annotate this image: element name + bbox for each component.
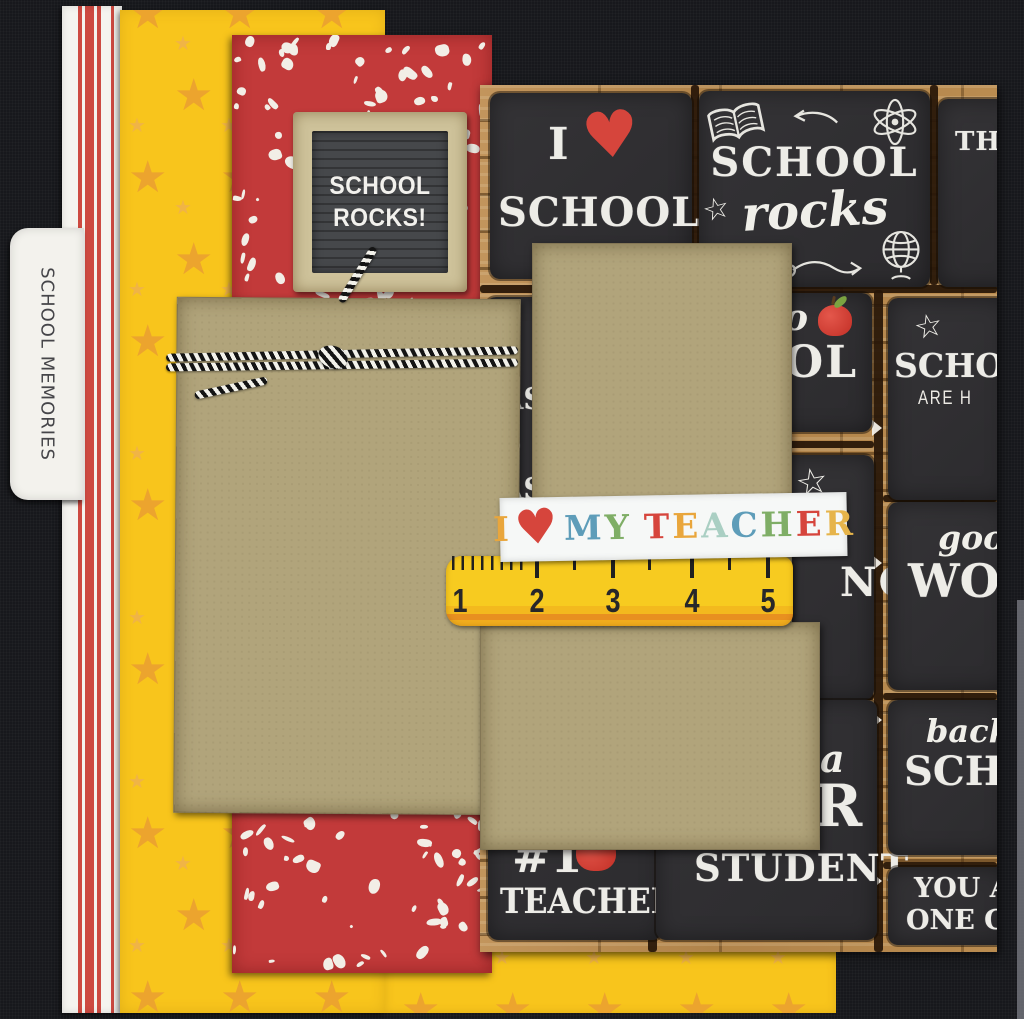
speckle [304,859,321,875]
ruler-number: 1 [450,582,470,620]
speckle [241,189,247,200]
letterboard: SCHOOL ROCKS! [293,112,467,292]
ruler-numbers: 12345 [446,556,793,626]
speckle [461,53,472,66]
speckle [257,899,265,909]
star-glyph: ★ [174,894,213,938]
star-glyph: ★ [120,238,121,282]
speckle [432,852,446,870]
speckle [465,143,480,154]
school-days-line1: SCHOO [894,346,997,385]
speckle [353,76,359,85]
star-glyph: ★ [128,484,167,528]
heart-icon: ♥ [512,497,562,557]
speckle [447,82,453,91]
speckle [413,95,426,106]
star-glyph: ★ [120,730,121,774]
banner-letter: R [824,504,854,545]
speckle [433,44,450,59]
star-glyph: ★ [493,988,532,1013]
one-cool-line1: YOU A [914,873,997,904]
back-script: back [926,712,997,750]
speckle [380,949,388,958]
teacher-banner-letters: I♥MYTEACHER [492,496,856,558]
speckle [255,197,259,201]
star-glyph: ★ [585,952,603,967]
speckle [280,56,296,72]
speckle [436,901,450,917]
star-glyph: ★ [312,976,351,1013]
speckle [395,69,408,83]
banner-letter: Y [604,508,630,548]
star-glyph: ★ [128,812,167,856]
banner-letter: E [672,507,700,547]
speckle [234,56,242,63]
star-glyph: ★ [174,238,213,282]
star-glyph: ★ [120,894,121,938]
wood-gap-line [883,693,997,700]
star-glyph: ★ [174,853,192,873]
star-glyph: ★ [120,566,121,610]
speckle [248,215,259,225]
heart-icon: ♥ [578,96,643,176]
speckle [235,86,246,97]
star-glyph: ★ [677,988,716,1013]
speckle [281,834,295,844]
ruler-embellishment: 12345 [446,556,793,626]
speckle [265,880,280,893]
star-glyph: ★ [220,976,259,1013]
school-rocks-word1: SCHOOL [710,139,918,186]
star-glyph: ★ [677,952,695,967]
speckle [267,147,283,162]
ruler-number: 5 [758,582,778,620]
star-glyph: ★ [128,935,146,955]
speckle [241,232,251,246]
one-cool-line2: ONE CO [906,905,997,936]
banner-letter: M [564,508,603,549]
speckle [414,944,430,961]
card-good-work-partial: good WOR [888,502,997,690]
speckle [458,858,468,867]
speckle [239,828,255,841]
speckle [244,35,257,48]
speckle [466,876,480,888]
arrow-icon [791,107,839,127]
speckle [354,55,367,67]
letterboard-board: SCHOOL ROCKS! [312,131,448,273]
speckle [478,41,487,51]
card-back-to-school-partial: back SCHO [888,700,997,855]
speckle [281,42,293,54]
speckle [242,847,248,856]
speckle [244,273,250,282]
speckle [456,921,468,934]
star-glyph: ★ [120,402,121,446]
tab-label: SCHOOL MEMORIES [37,267,58,461]
school-rocks-word2: rocks [740,179,890,243]
banner-letter: C [730,506,759,546]
star-glyph: ★ [128,443,146,463]
card-this-partial: TH [938,99,997,287]
speckle [256,57,267,72]
good-work-script: good [938,518,997,557]
speckle [247,257,259,273]
i-love-school-word: SCHOOL [498,189,700,236]
teacher-word: TEACHER [500,881,677,922]
star-glyph: ★ [312,10,351,36]
speckle [401,44,411,55]
speckle [455,874,465,888]
speckle [374,88,390,104]
speckle [411,904,418,912]
star-glyph: ★ [769,952,787,967]
star-glyph: ★ [174,197,192,217]
speckle [431,96,438,102]
speckle [367,878,380,895]
speckle [255,824,266,837]
speckle [275,132,283,140]
speckle [349,924,354,928]
star-glyph: ★ [128,156,167,200]
speckle [422,851,429,859]
speckle [233,102,239,109]
banner-letter: E [795,504,823,544]
apple-icon [818,305,852,336]
i-love-school-prefix: I [548,119,569,170]
star-glyph: ★ [128,115,146,135]
star-glyph: ★ [128,648,167,692]
ruler-number: 2 [527,582,547,620]
star-glyph: ★ [128,10,167,36]
card-one-cool-partial: YOU A ONE CO [888,867,997,945]
star-glyph: ★ [174,33,192,53]
star-glyph: ★ [220,10,259,36]
letterboard-line2: ROCKS! [333,202,426,235]
ruler-number: 3 [603,582,623,620]
star-glyph: ★ [128,771,146,791]
this-partial-text: TH [955,127,997,157]
speckle [275,271,287,285]
ruler-number: 4 [682,582,702,620]
speckle [385,46,394,54]
scrapbook-page-photo: SCHOOL MEMORIES ★★★★★★★★★★★★★★★★★★★★★★★★… [0,0,1024,1019]
banner-letter: A [701,506,729,546]
star-glyph: ★ [128,976,167,1013]
wood-gap-line [930,85,938,285]
kraft-photo-mat-bottom [480,622,820,850]
banner-letter: I [493,510,511,550]
surface-edge [1017,600,1024,1019]
speckle [420,824,428,829]
good-work-caps: WOR [908,554,997,608]
school-days-line2: ARE H [918,388,972,410]
student-cap-r: R [814,772,862,840]
card-school-days-partial: ☆ SCHOO ARE H [888,298,997,500]
speckle [284,855,290,861]
speckle [420,65,435,80]
banner-letter: T [644,507,671,547]
speckle [261,835,275,851]
letterboard-line1: SCHOOL [329,170,430,203]
speckle [269,959,275,963]
student-word: STUDENT [694,846,909,890]
star-glyph: ★ [585,988,624,1013]
speckle [360,953,371,960]
back-caps: SCHO [904,748,997,795]
star-glyph: ★ [120,74,121,118]
speckle [332,952,349,971]
star-doodle-icon: ☆ [700,192,734,228]
star-glyph: ★ [128,279,146,299]
star-glyph: ★ [174,74,213,118]
speckle [240,253,246,264]
speckle [233,945,236,955]
speckle [356,960,365,968]
corner-triangle-icon [872,420,882,436]
teacher-banner: I♥MYTEACHER [499,492,847,562]
school-memories-tab: SCHOOL MEMORIES [10,228,84,500]
star-glyph: ★ [493,952,511,967]
star-glyph: ★ [128,607,146,627]
banner-letter: H [760,505,794,546]
star-glyph: ★ [128,320,167,364]
speckle [292,854,305,865]
red-striped-paper [62,6,122,1013]
globe-icon [878,227,924,283]
star-doodle-icon: ☆ [911,307,946,344]
speckle [363,100,375,106]
speckle [321,895,328,904]
speckle [467,816,479,826]
star-glyph: ★ [769,988,808,1013]
speckle [334,829,346,841]
to-school-caps: OL [785,337,858,388]
star-glyph: ★ [401,988,440,1013]
